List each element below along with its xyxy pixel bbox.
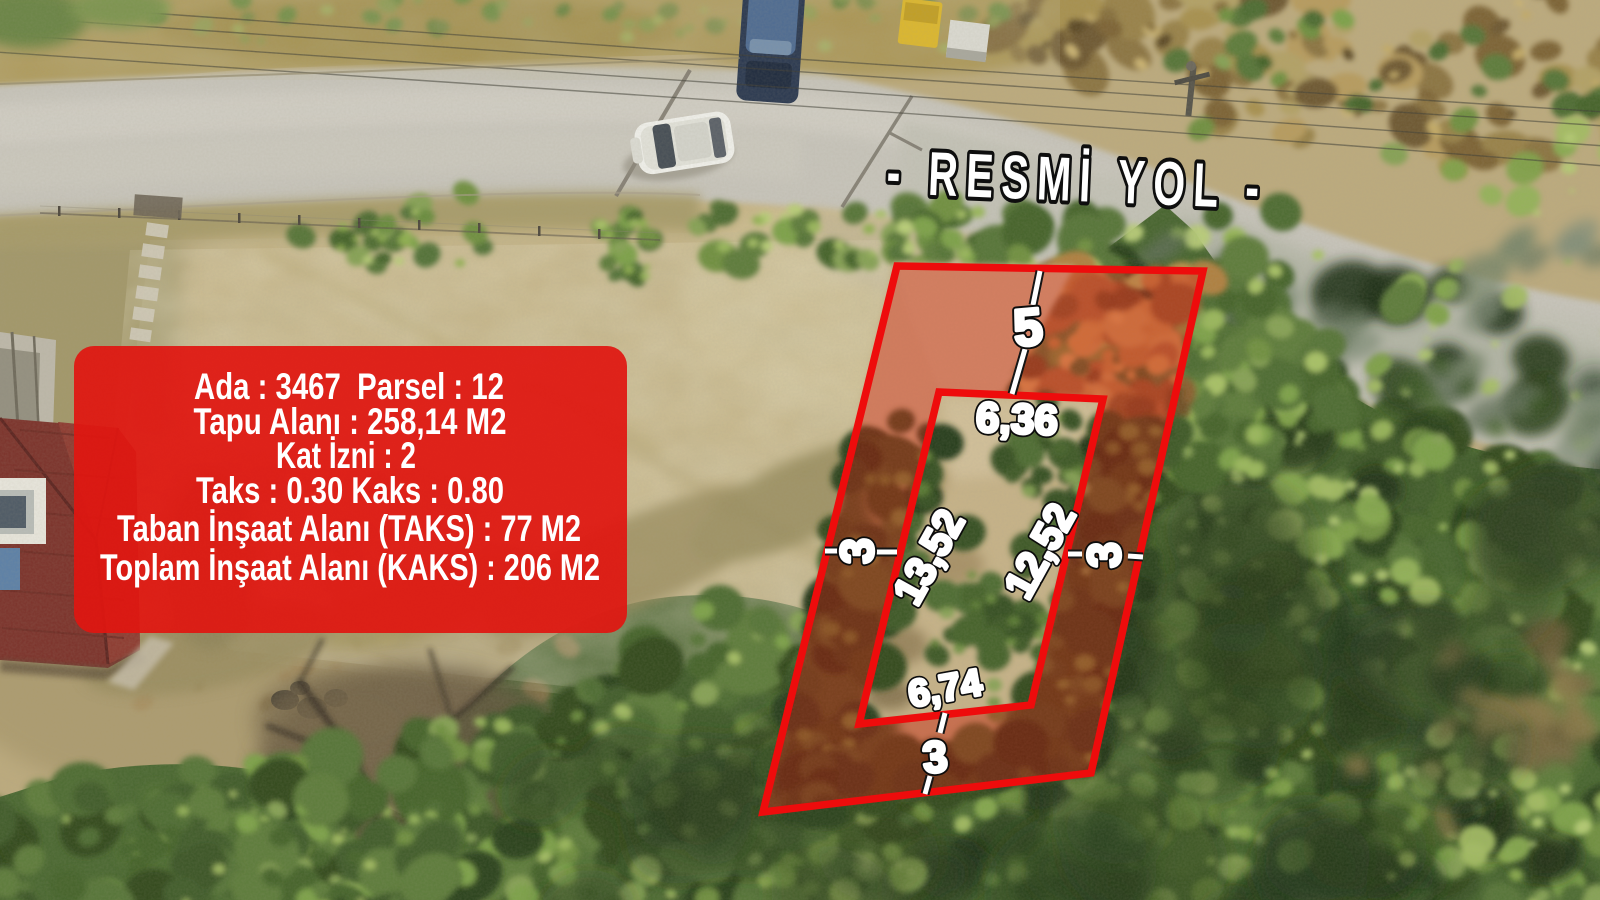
svg-text:5: 5 — [1011, 298, 1045, 358]
svg-text:Taks : 0.30 Kaks : 0.80: Taks : 0.30 Kaks : 0.80 — [196, 470, 504, 511]
svg-text:Taban İnşaat Alanı (TAKS) : 77: Taban İnşaat Alanı (TAKS) : 77 M2 — [117, 508, 581, 549]
svg-text:6,36: 6,36 — [975, 393, 1059, 444]
svg-text:3: 3 — [1078, 542, 1130, 568]
svg-text:3: 3 — [921, 732, 950, 783]
svg-text:Toplam İnşaat Alanı (KAKS) : 2: Toplam İnşaat Alanı (KAKS) : 206 M2 — [100, 547, 600, 588]
svg-text:3: 3 — [831, 538, 883, 564]
